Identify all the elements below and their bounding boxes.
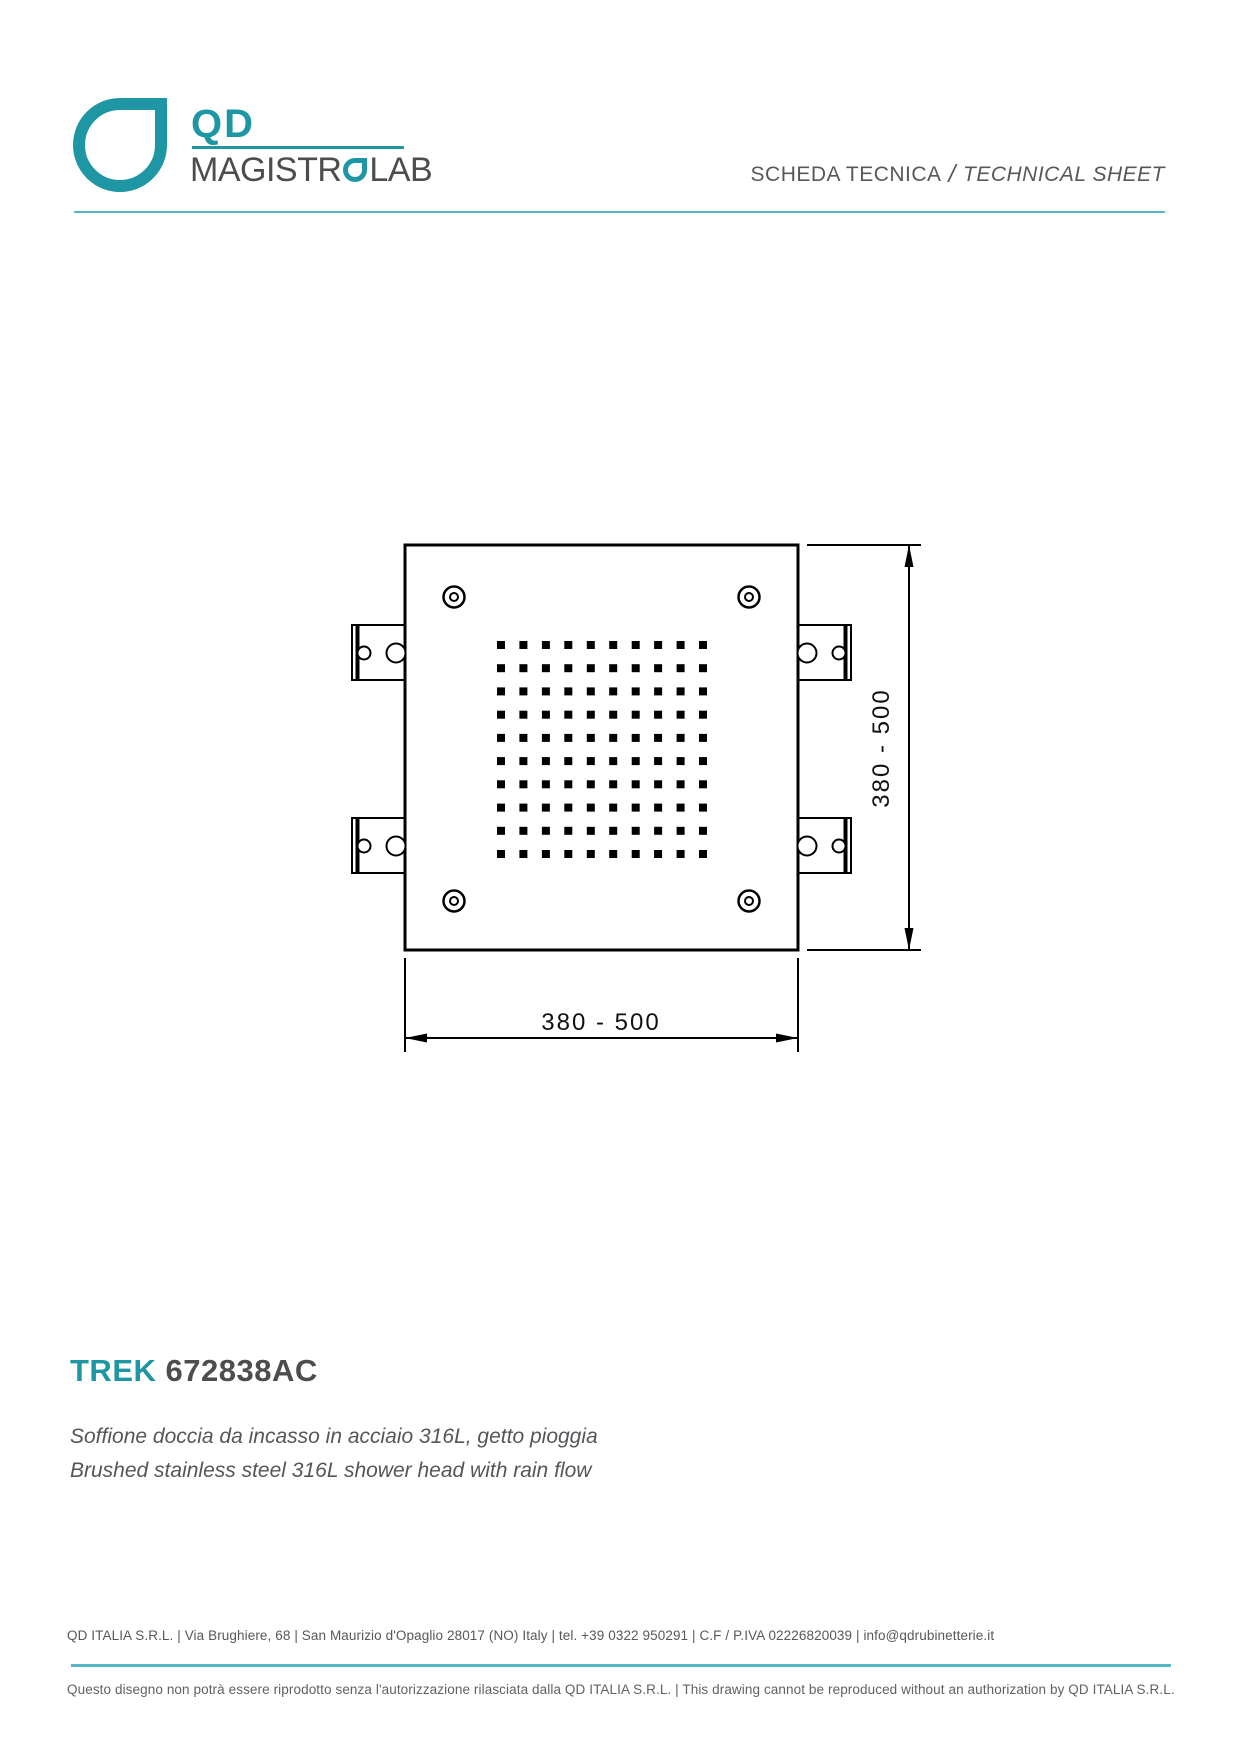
nozzle-hole xyxy=(609,780,617,788)
nozzle-hole xyxy=(564,711,572,719)
nozzle-hole xyxy=(587,734,595,742)
nozzle-hole xyxy=(587,804,595,812)
nozzle-hole xyxy=(542,711,550,719)
nozzle-hole xyxy=(564,641,572,649)
nozzle-hole xyxy=(609,827,617,835)
product-title: TREK 672838AC xyxy=(70,1353,318,1389)
nozzle-hole xyxy=(677,827,685,835)
nozzle-hole xyxy=(654,780,662,788)
footer-divider xyxy=(71,1664,1171,1667)
nozzle-hole xyxy=(677,804,685,812)
nozzle-hole xyxy=(542,641,550,649)
nozzle-hole xyxy=(519,757,527,765)
product-description-it: Soffione doccia da incasso in acciaio 31… xyxy=(70,1420,598,1454)
nozzle-hole xyxy=(587,780,595,788)
nozzle-hole xyxy=(497,641,505,649)
nozzle-hole xyxy=(699,664,707,672)
nozzle-hole xyxy=(542,804,550,812)
nozzle-hole xyxy=(699,734,707,742)
nozzle-hole xyxy=(519,711,527,719)
nozzle-hole xyxy=(542,734,550,742)
nozzle-hole xyxy=(677,734,685,742)
nozzle-hole xyxy=(542,687,550,695)
dimension-height: 380 - 500 xyxy=(807,545,921,950)
nozzle-hole xyxy=(519,804,527,812)
nozzle-hole xyxy=(587,711,595,719)
nozzle-hole xyxy=(654,804,662,812)
nozzle-hole xyxy=(677,664,685,672)
technical-sheet-page: QD MAGISTRLAB SCHEDA TECNICA/TECHNICAL S… xyxy=(0,0,1240,1754)
nozzle-hole xyxy=(609,711,617,719)
product-description: Soffione doccia da incasso in acciaio 31… xyxy=(70,1420,598,1488)
nozzle-hole xyxy=(519,850,527,858)
nozzle-hole xyxy=(497,827,505,835)
nozzle-hole xyxy=(654,757,662,765)
nozzle-hole xyxy=(609,734,617,742)
nozzle-hole xyxy=(654,687,662,695)
footer-disclaimer: Questo disegno non potrà essere riprodot… xyxy=(67,1682,1175,1697)
nozzle-hole xyxy=(609,687,617,695)
nozzle-hole xyxy=(587,850,595,858)
corner-screw-bottom-right xyxy=(739,891,760,912)
nozzle-hole xyxy=(497,687,505,695)
nozzle-hole xyxy=(564,757,572,765)
corner-screw-top-left xyxy=(444,587,465,608)
nozzle-hole xyxy=(542,780,550,788)
nozzle-hole xyxy=(519,687,527,695)
nozzle-hole xyxy=(632,827,640,835)
nozzle-hole xyxy=(632,804,640,812)
nozzle-hole xyxy=(654,711,662,719)
nozzle-hole xyxy=(519,827,527,835)
nozzle-hole xyxy=(677,780,685,788)
nozzle-hole xyxy=(497,804,505,812)
product-description-en: Brushed stainless steel 316L shower head… xyxy=(70,1454,598,1488)
nozzle-hole xyxy=(677,850,685,858)
nozzle-hole xyxy=(587,641,595,649)
nozzle-hole xyxy=(699,641,707,649)
nozzle-hole xyxy=(497,711,505,719)
corner-screw-bottom-left xyxy=(444,891,465,912)
product-series: TREK xyxy=(70,1353,156,1388)
nozzle-hole xyxy=(564,734,572,742)
nozzle-hole xyxy=(699,711,707,719)
nozzle-hole xyxy=(677,687,685,695)
nozzle-hole xyxy=(497,757,505,765)
nozzle-hole xyxy=(632,780,640,788)
nozzle-hole xyxy=(699,687,707,695)
nozzle-hole xyxy=(699,850,707,858)
nozzle-hole xyxy=(564,850,572,858)
nozzle-hole xyxy=(699,780,707,788)
nozzle-hole xyxy=(609,804,617,812)
nozzle-hole xyxy=(609,641,617,649)
nozzle-hole xyxy=(632,850,640,858)
shower-plate xyxy=(405,545,798,950)
nozzle-hole xyxy=(632,687,640,695)
nozzle-hole xyxy=(609,850,617,858)
nozzle-hole xyxy=(519,734,527,742)
corner-screw-top-right xyxy=(739,587,760,608)
nozzle-hole xyxy=(564,687,572,695)
nozzle-hole xyxy=(564,804,572,812)
nozzle-hole xyxy=(497,664,505,672)
nozzle-hole xyxy=(587,687,595,695)
nozzle-hole xyxy=(587,827,595,835)
nozzle-hole xyxy=(609,664,617,672)
technical-drawing: 380 - 500 380 - 500 xyxy=(0,0,1240,1754)
nozzle-hole xyxy=(632,664,640,672)
nozzle-hole xyxy=(519,664,527,672)
dimension-height-label: 380 - 500 xyxy=(868,688,895,807)
nozzle-hole xyxy=(519,780,527,788)
nozzle-hole xyxy=(587,664,595,672)
footer-company-line: QD ITALIA S.R.L. | Via Brughiere, 68 | S… xyxy=(67,1628,994,1643)
nozzle-hole xyxy=(677,757,685,765)
nozzle-hole xyxy=(564,827,572,835)
nozzle-hole xyxy=(699,827,707,835)
nozzle-hole xyxy=(564,664,572,672)
nozzle-hole xyxy=(542,850,550,858)
dimension-width: 380 - 500 xyxy=(405,958,798,1052)
nozzle-hole xyxy=(654,664,662,672)
nozzle-hole xyxy=(632,711,640,719)
nozzle-hole xyxy=(699,757,707,765)
dimension-width-label: 380 - 500 xyxy=(541,1009,660,1036)
nozzle-hole xyxy=(564,780,572,788)
nozzle-hole xyxy=(609,757,617,765)
nozzle-hole xyxy=(654,827,662,835)
nozzle-hole xyxy=(497,780,505,788)
nozzle-hole xyxy=(632,734,640,742)
nozzle-hole xyxy=(677,641,685,649)
nozzle-hole xyxy=(542,827,550,835)
nozzle-hole xyxy=(497,734,505,742)
nozzle-hole xyxy=(542,757,550,765)
nozzle-hole xyxy=(654,641,662,649)
nozzle-hole xyxy=(654,734,662,742)
nozzle-hole xyxy=(587,757,595,765)
nozzle-hole xyxy=(542,664,550,672)
nozzle-hole xyxy=(632,641,640,649)
nozzle-hole xyxy=(519,641,527,649)
nozzle-hole xyxy=(677,711,685,719)
nozzle-hole xyxy=(497,850,505,858)
product-code: 672838AC xyxy=(166,1353,318,1388)
nozzle-hole xyxy=(632,757,640,765)
nozzle-hole xyxy=(699,804,707,812)
nozzle-hole xyxy=(654,850,662,858)
